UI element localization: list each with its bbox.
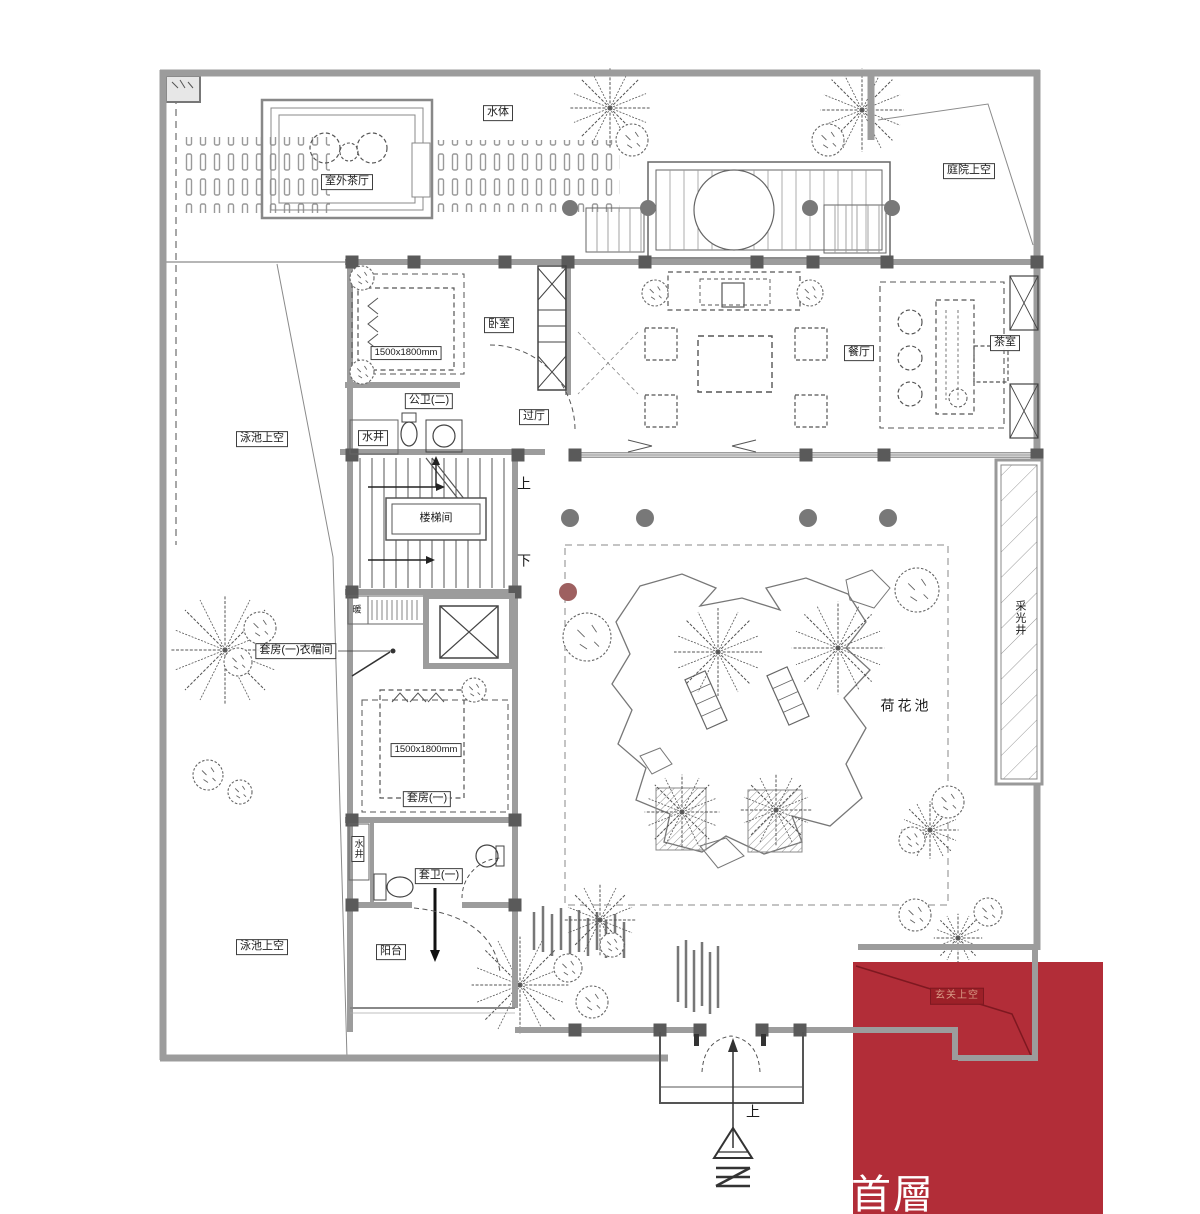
label-balcony: 阳台 [376, 944, 406, 960]
label-passage-hall: 过厅 [519, 409, 549, 425]
label-bed-size-suite: 1500x1800mm [391, 743, 462, 757]
label-water-body: 水体 [483, 105, 513, 121]
label-courtyard-above: 庭院上空 [943, 163, 995, 179]
floor-plan-canvas: 水体 室外茶厅 庭院上空 卧室 1500x1800mm 公卫(二) 过厅 餐厅 … [0, 0, 1200, 1214]
label-water-well-bottom: 水井 [351, 836, 364, 862]
labels-layer: 水体 室外茶厅 庭院上空 卧室 1500x1800mm 公卫(二) 过厅 餐厅 … [0, 0, 1200, 1214]
label-water-well-top: 水井 [358, 430, 388, 446]
label-suite1-bath: 套卫(一) [415, 868, 463, 884]
label-pool-above-left: 泳池上空 [236, 431, 288, 447]
label-up-entrance: 上 [746, 1103, 760, 1121]
label-public-bath-2: 公卫(二) [405, 393, 453, 409]
label-suite1-cloakroom: 套房(一)衣帽间 [255, 643, 336, 659]
label-entry-above: 玄关上空 [930, 988, 984, 1005]
label-bedroom: 卧室 [484, 317, 514, 333]
floor-tag: 首層 [851, 1162, 935, 1214]
label-outdoor-tea-hall: 室外茶厅 [321, 174, 373, 190]
label-heating: 暖 [352, 604, 361, 615]
label-bed-size-top: 1500x1800mm [371, 346, 442, 360]
label-suite1: 套房(一) [403, 791, 451, 807]
label-dining-room: 餐厅 [844, 345, 874, 361]
label-down-stairs: 下 [517, 552, 531, 570]
label-lotus-pond: 荷花池 [881, 697, 932, 715]
label-tea-room: 茶室 [990, 335, 1020, 351]
label-pool-above-bottom: 泳池上空 [236, 939, 288, 955]
label-stair-hall: 楼梯间 [420, 512, 453, 526]
label-light-well: 采光井 [1012, 598, 1026, 638]
label-up-stairs: 上 [517, 475, 531, 493]
